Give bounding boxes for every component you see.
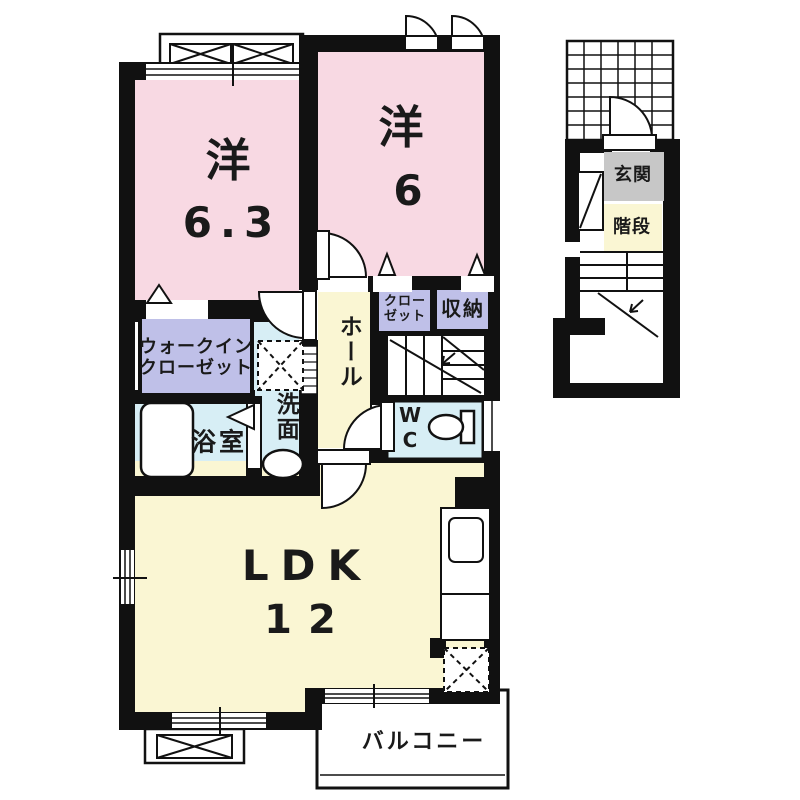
bedroom2-window-leaf-right (451, 36, 484, 50)
bedroom1-label: 洋 (205, 135, 250, 187)
refrigerator-space (444, 648, 489, 692)
stairs-2f (388, 336, 484, 395)
bedroom1-size: 6.3 (183, 199, 281, 247)
closet-line2: ゼット (384, 310, 426, 325)
ldk-label: LDK (242, 542, 372, 590)
floor-plan-canvas: 洋 6.3 洋 6 ウォークイン クローゼット ホール クロー ゼット 収納 洗… (0, 0, 800, 800)
bathtub (141, 403, 193, 477)
entrance-door-leaf (603, 135, 656, 150)
upper-window-shutter-box (160, 34, 303, 65)
hall-label: ホール (335, 315, 361, 390)
closet-line1: クロー (384, 295, 426, 310)
bedroom2-size: 6 (393, 167, 422, 215)
walk-in-closet-line1: ウォークイン (139, 337, 253, 358)
kitchen-counter (441, 508, 490, 640)
walk-in-closet-label: ウォークイン クローゼット (139, 337, 253, 378)
balcony-label: バルコニー (362, 729, 487, 754)
walk-in-closet-line2: クローゼット (139, 358, 253, 379)
bathroom-label: 浴室 (191, 429, 247, 458)
entrance-label: 玄関 (614, 166, 652, 187)
ldk-size: 12 (264, 597, 352, 643)
wc-label: W C (399, 403, 421, 453)
bedroom1-door-leaf (303, 291, 316, 340)
wc-line1: W (399, 403, 421, 428)
shoe-cabinet-1f (578, 172, 603, 230)
stairs-label: 階段 (613, 218, 651, 239)
washing-machine-pan (258, 341, 303, 390)
bedroom2-label: 洋 (378, 102, 423, 154)
wc-line2: C (399, 428, 421, 453)
closet-label: クロー ゼット (384, 295, 426, 325)
wc-door-leaf (381, 402, 394, 451)
storage-label: 収納 (441, 298, 485, 321)
bedroom1-floor (133, 76, 300, 308)
bedroom2-door-leaf (316, 231, 329, 279)
lower-window-shutter-box (145, 729, 244, 763)
wall-vent-notch-1f (562, 242, 582, 257)
bedroom2-window-leaf-left (405, 36, 438, 50)
ldk-door-leaf (317, 450, 370, 464)
washbasin-sink (263, 450, 303, 478)
washroom-label: 洗面 (272, 392, 298, 442)
